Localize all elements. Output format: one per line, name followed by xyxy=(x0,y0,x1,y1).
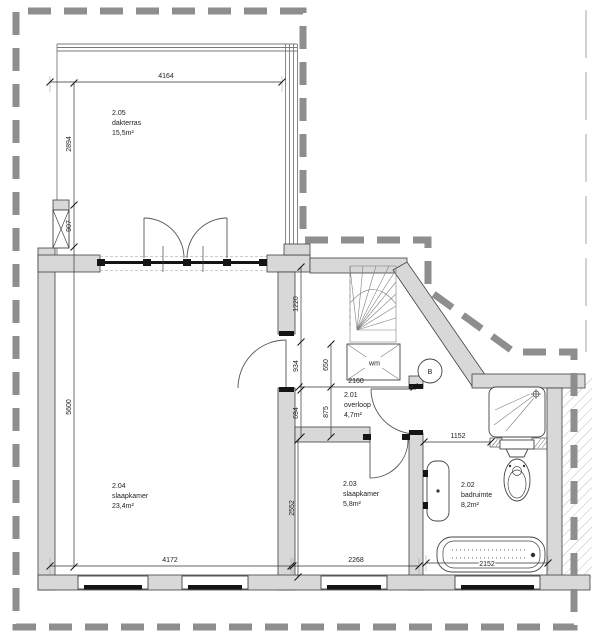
toilet xyxy=(500,440,534,501)
wall-landing-south xyxy=(295,427,370,442)
room-label-slaapkamer-204: 2.04 slaapkamer 23,4m² xyxy=(112,483,149,510)
dim-landing-934: 934 xyxy=(293,360,300,372)
svg-text:slaapkamer: slaapkamer xyxy=(343,491,380,498)
washing-machine-box: wm xyxy=(347,344,400,380)
svg-text:4,7m²: 4,7m² xyxy=(344,412,363,419)
window xyxy=(455,576,540,590)
dim-bedroom-depth: 5600 xyxy=(66,399,73,415)
wall-corner xyxy=(284,244,310,255)
dim-terrace-width: 4164 xyxy=(158,73,174,80)
marker-b-circle: B xyxy=(418,359,442,383)
dim-bedroom2-depth: 2552 xyxy=(289,500,296,516)
bathroom-fixtures xyxy=(423,387,547,572)
dim-stair-opening: 1220 xyxy=(293,296,300,312)
wall-facade-left xyxy=(38,255,100,272)
wall-bath-east xyxy=(547,388,562,577)
svg-text:5,8m²: 5,8m² xyxy=(343,501,362,508)
wall-facade-right xyxy=(267,255,310,272)
terrace-railing xyxy=(57,44,298,258)
wall-bath-west xyxy=(409,433,423,590)
svg-text:23,4m²: 23,4m² xyxy=(112,503,134,510)
dim-landing-width: 2160 xyxy=(348,378,364,385)
svg-text:2.04: 2.04 xyxy=(112,483,126,490)
svg-text:2.02: 2.02 xyxy=(461,482,475,489)
room-label-badruimte: 2.02 badruimte 8,2m² xyxy=(461,482,492,509)
wall-terrace-pier-cap xyxy=(53,200,69,210)
window xyxy=(78,576,148,590)
dim-landing-694: 694 xyxy=(293,407,300,419)
marker-b-label: B xyxy=(428,369,433,376)
svg-text:2.01: 2.01 xyxy=(344,392,358,399)
svg-text:2.03: 2.03 xyxy=(343,481,357,488)
room-label-dakterras: 2.05 dakterras 15,5m² xyxy=(112,110,142,137)
door-bedroom-203 xyxy=(363,434,410,478)
dim-bedroom2-width: 2268 xyxy=(348,557,364,564)
svg-text:15,5m²: 15,5m² xyxy=(112,130,134,137)
floor-plan-canvas: wm B xyxy=(0,0,600,640)
svg-text:8,2m²: 8,2m² xyxy=(461,502,480,509)
wall-bath-north xyxy=(472,374,585,388)
dim-bath-width: 2152 xyxy=(479,561,495,568)
svg-text:overloop: overloop xyxy=(344,402,371,409)
dim-landing-650: 650 xyxy=(323,359,330,371)
terrace-french-doors xyxy=(144,218,227,258)
dim-landing-875: 875 xyxy=(323,406,330,418)
dim-terrace-wall: 907 xyxy=(66,220,73,232)
washing-machine-label: wm xyxy=(368,361,380,368)
svg-text:2.05: 2.05 xyxy=(112,110,126,117)
shower xyxy=(489,387,545,437)
roof-hatch-zone xyxy=(560,378,592,577)
door-bathroom xyxy=(371,384,423,435)
window xyxy=(182,576,248,590)
wall-stair-north xyxy=(310,258,407,273)
window xyxy=(321,576,387,590)
dim-terrace-depth: 2894 xyxy=(66,136,73,152)
stairs xyxy=(350,266,396,342)
room-label-slaapkamer-203: 2.03 slaapkamer 5,8m² xyxy=(343,481,380,508)
svg-text:badruimte: badruimte xyxy=(461,492,492,499)
dim-bedroom-width: 4172 xyxy=(162,557,178,564)
door-bedroom-204 xyxy=(238,331,294,392)
svg-text:slaapkamer: slaapkamer xyxy=(112,493,149,500)
svg-text:dakterras: dakterras xyxy=(112,120,142,127)
facade-glazing xyxy=(97,246,267,272)
wall-west xyxy=(38,248,55,590)
dim-bath-niche: 1152 xyxy=(450,433,465,440)
room-label-overloop: 2.01 overloop 4,7m² xyxy=(344,392,371,419)
washbasin xyxy=(423,461,449,521)
floor-plan-drawing: wm B xyxy=(0,0,600,640)
